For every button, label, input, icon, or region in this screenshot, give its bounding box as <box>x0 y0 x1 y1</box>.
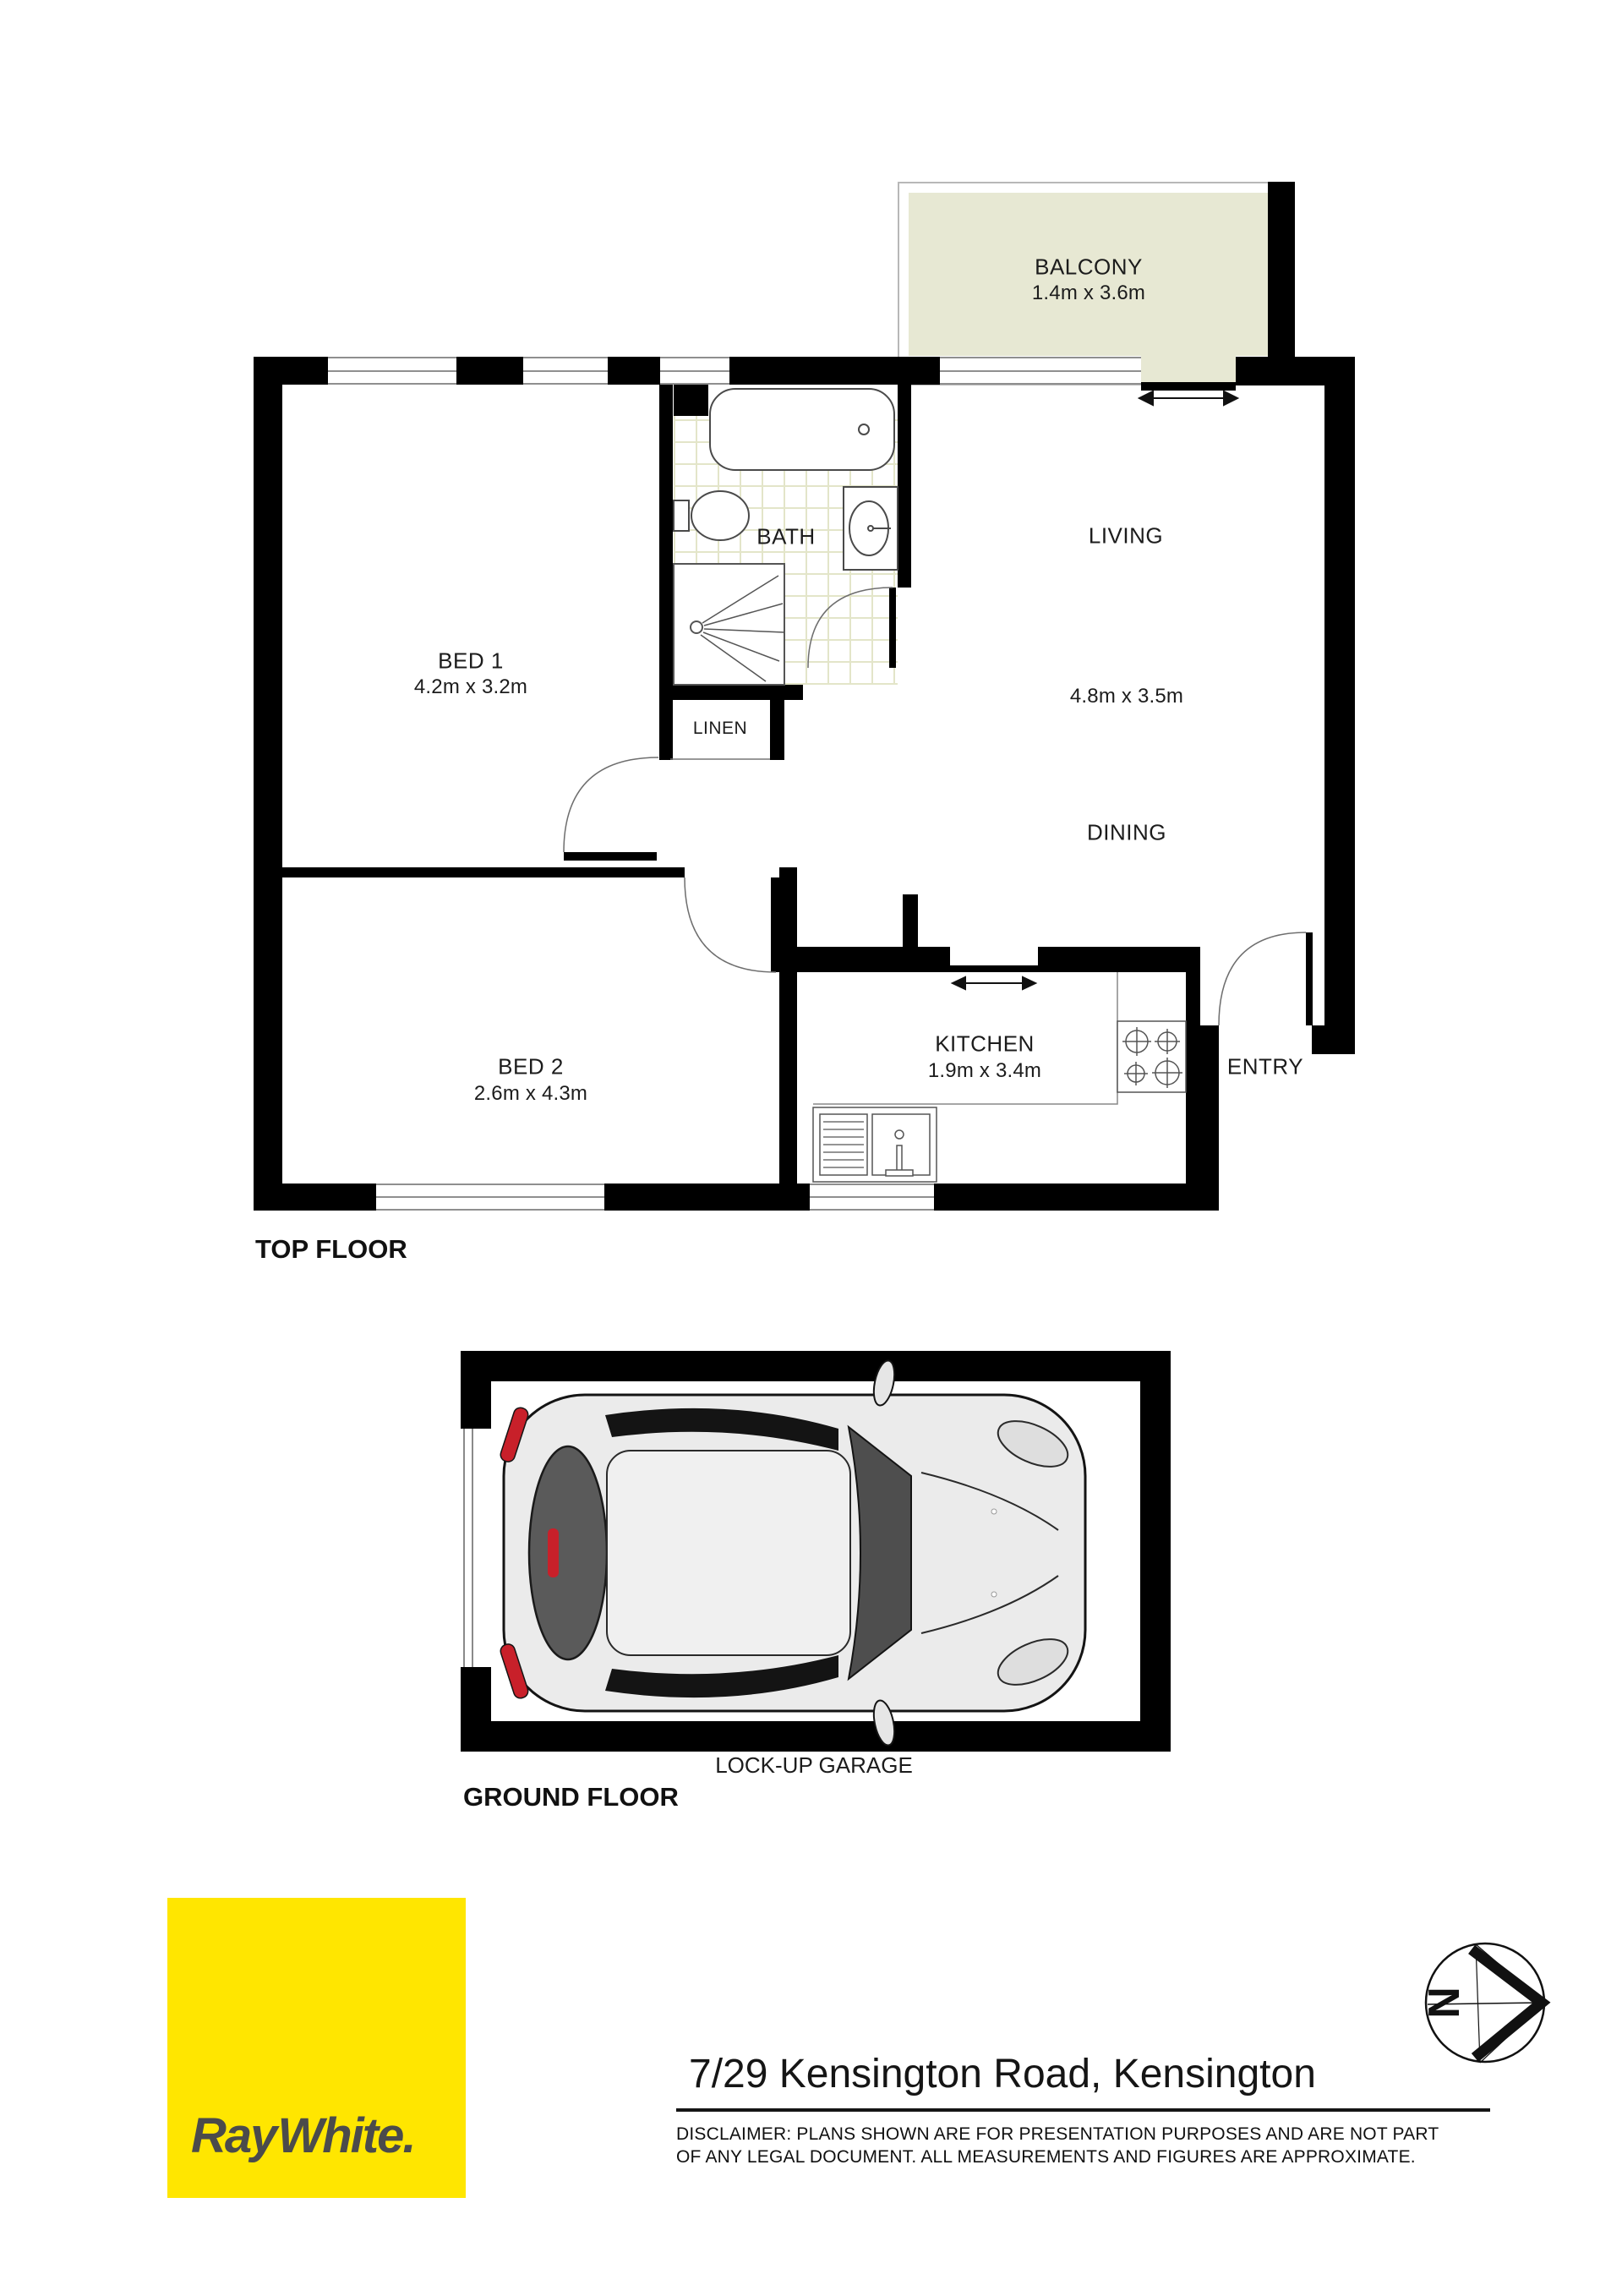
window <box>523 357 608 385</box>
wall <box>934 1184 1215 1211</box>
garage-label: LOCK-UP GARAGE <box>715 1752 913 1779</box>
wall <box>1312 1025 1355 1054</box>
wall <box>1324 385 1355 1025</box>
garage-door <box>463 1429 465 1667</box>
room-label-living: LIVING <box>1089 523 1163 549</box>
raywhite-logo-text: Ray White. <box>191 2107 415 2164</box>
wall <box>1186 1025 1219 1211</box>
room-label-entry: ENTRY <box>1227 1054 1303 1080</box>
wall <box>674 385 708 416</box>
room-label-dining: DINING <box>1087 820 1166 846</box>
wall <box>779 867 797 1211</box>
window <box>328 357 456 385</box>
disclaimer-line2: OF ANY LEGAL DOCUMENT. ALL MEASUREMENTS … <box>676 2147 1509 2168</box>
car-top-view <box>499 1358 1085 1747</box>
wall <box>729 357 915 385</box>
wall <box>659 385 673 760</box>
window <box>376 1184 604 1211</box>
wall <box>254 867 685 877</box>
kitchen-sliding-window <box>950 965 1038 972</box>
entry-door-leaf <box>1306 932 1313 1025</box>
sliding-arrow-kitchen <box>953 977 1035 989</box>
bed1-door-leaf <box>564 852 657 861</box>
property-address: 7/29 Kensington Road, Kensington <box>689 2051 1316 2097</box>
wall <box>1236 357 1355 385</box>
window <box>940 357 1141 385</box>
room-label-kitchen: KITCHEN <box>935 1031 1035 1058</box>
window <box>660 357 729 385</box>
bathroom-tiled-floor <box>674 416 898 685</box>
wall <box>915 357 940 385</box>
room-dims-kitchen: 1.9m x 3.4m <box>928 1059 1041 1083</box>
raywhite-logo: Ray White. <box>167 1898 466 2198</box>
wall <box>254 357 282 1211</box>
divider-line <box>676 2108 1490 2112</box>
room-label-bed1: BED 1 <box>438 648 504 675</box>
wall <box>461 1351 491 1429</box>
room-label-bath: BATH <box>756 524 815 550</box>
wall <box>659 685 803 700</box>
wall <box>1186 972 1200 1025</box>
bed2-door-leaf <box>771 877 781 972</box>
sliding-arrow-balcony <box>1139 391 1237 405</box>
wall <box>461 1721 1171 1752</box>
window <box>810 1184 934 1211</box>
wall <box>254 1184 376 1211</box>
wall <box>1038 947 1200 972</box>
wall <box>461 1667 491 1752</box>
wall <box>1140 1351 1171 1752</box>
north-compass-icon: N <box>1420 1943 1544 2063</box>
wall <box>254 357 328 385</box>
wall <box>770 699 784 760</box>
wall <box>456 357 523 385</box>
top-floor-title: TOP FLOOR <box>255 1234 407 1265</box>
bath-door-leaf <box>889 588 896 668</box>
balcony-door-recess <box>1141 356 1236 382</box>
sink-icon <box>813 1107 937 1182</box>
room-dims-living-dining: 4.8m x 3.5m <box>1070 685 1183 708</box>
ground-floor-title: GROUND FLOOR <box>463 1782 679 1812</box>
floorplan-page: BALCONY 1.4m x 3.6m BED 1 4.2m x 3.2m BA… <box>0 0 1622 2296</box>
disclaimer-line1: DISCLAIMER: PLANS SHOWN ARE FOR PRESENTA… <box>676 2124 1509 2145</box>
wall <box>903 894 918 948</box>
wall <box>608 357 660 385</box>
room-dims-bed2: 2.6m x 4.3m <box>474 1082 587 1106</box>
compass-north-letter: N <box>1420 1987 1469 2019</box>
room-label-bed2: BED 2 <box>498 1054 564 1080</box>
room-dims-balcony: 1.4m x 3.6m <box>1032 282 1145 305</box>
balcony-sliding-door <box>1141 382 1236 391</box>
room-dims-bed1: 4.2m x 3.2m <box>414 675 527 699</box>
wall <box>898 385 911 588</box>
wall <box>1268 182 1295 385</box>
room-label-balcony: BALCONY <box>1035 254 1143 281</box>
garage-door <box>472 1429 473 1667</box>
wall <box>797 947 950 972</box>
stove-icon <box>1117 1021 1186 1092</box>
room-label-linen: LINEN <box>693 719 747 739</box>
wall <box>461 1351 1171 1381</box>
